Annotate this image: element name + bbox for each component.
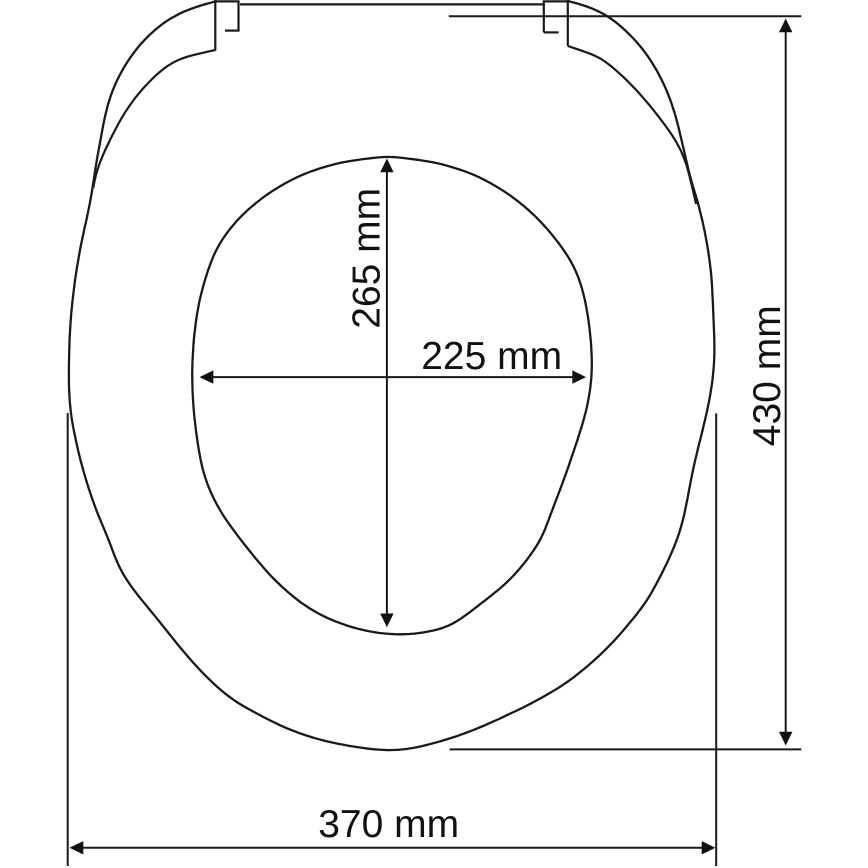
svg-text:265 mm: 265 mm [346,188,389,329]
svg-text:430 mm: 430 mm [746,305,789,446]
svg-text:370 mm: 370 mm [318,803,459,846]
svg-text:225 mm: 225 mm [421,335,562,378]
